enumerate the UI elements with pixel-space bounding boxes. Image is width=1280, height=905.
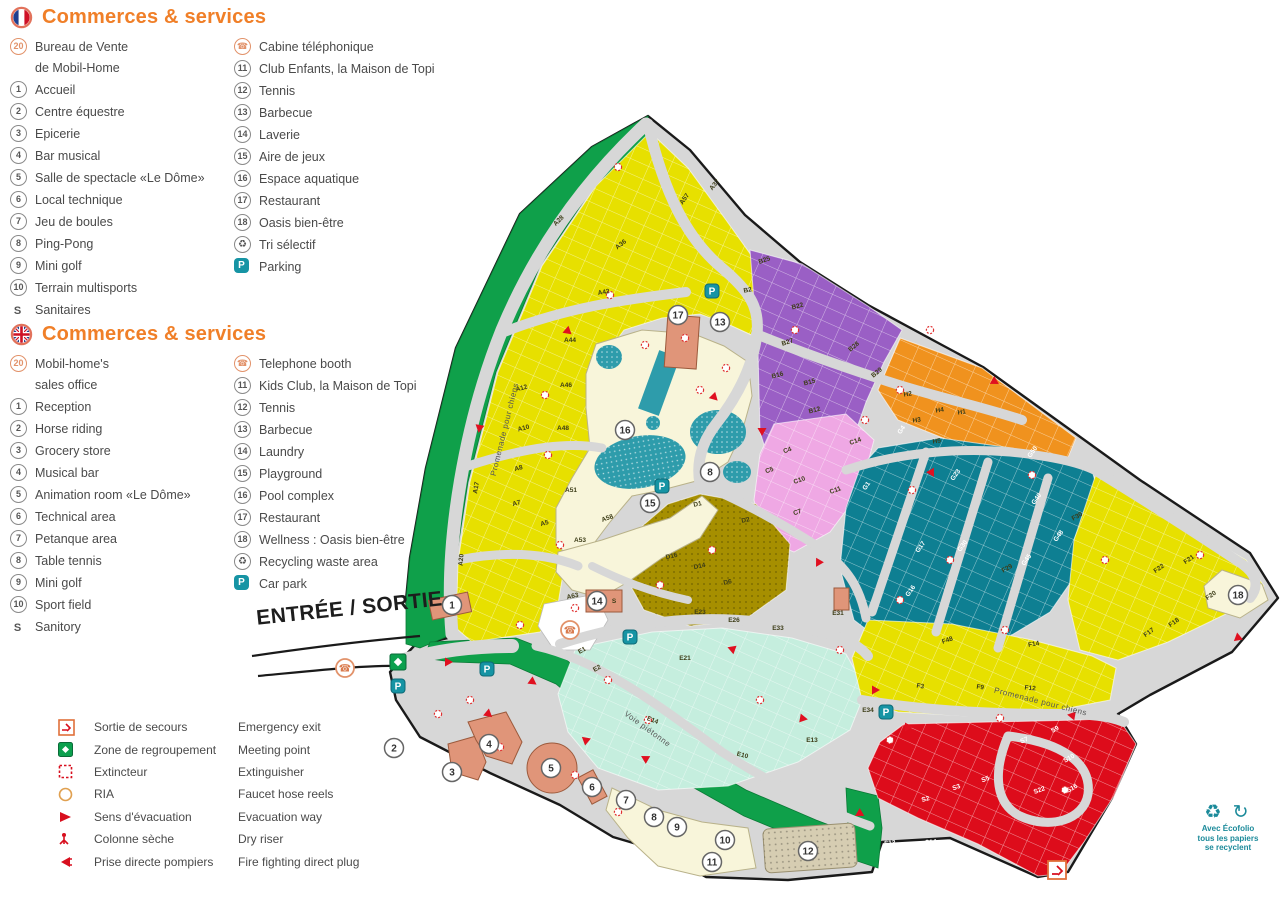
parking-icon: P: [234, 575, 249, 590]
location-marker-8-17: 8: [701, 463, 720, 482]
legend-english-header: Commerces & services: [10, 323, 466, 346]
legend-item-3: 3Grocery store: [10, 440, 234, 462]
legend-item-label: Tri sélectif: [259, 234, 316, 256]
extinguisher-marker-13: [836, 646, 843, 653]
french-flag-icon: [10, 6, 33, 29]
svg-text:P: P: [883, 708, 890, 719]
svg-text:☎: ☎: [339, 664, 351, 675]
number-15-icon: 15: [234, 465, 251, 482]
extinguisher-marker-20: [791, 326, 798, 333]
pitch-label-E13: E13: [806, 737, 818, 744]
ecofolio-label: ♻ ↻ Avec Écofolio tous les papiers se re…: [1182, 802, 1274, 853]
legend-french-col1: 20Bureau de Vente de Mobil-Home1Accueil2…: [10, 36, 234, 322]
telephone-marker-1: ☎: [561, 621, 579, 639]
legend-item-7: 7Jeu de boules: [10, 211, 234, 233]
number-1-icon: 1: [10, 398, 27, 415]
safety-label-fr: Colonne sèche: [94, 832, 238, 846]
legend-item-20: 20Mobil-home's sales office: [10, 353, 234, 396]
safety-label-en: Emergency exit: [238, 720, 359, 734]
number-14-icon: 14: [234, 126, 251, 143]
number-2-icon: 2: [10, 420, 27, 437]
number-11-icon: 11: [234, 377, 251, 394]
number-6-icon: 6: [10, 191, 27, 208]
legend-item-15: 15Aire de jeux: [234, 146, 458, 168]
svg-text:12: 12: [802, 847, 814, 858]
svg-text:2: 2: [391, 744, 397, 755]
number-3-icon: 3: [10, 125, 27, 142]
parking-marker-4: P: [480, 662, 494, 676]
number-4-icon: 4: [10, 147, 27, 164]
legend-item-6: 6Technical area: [10, 506, 234, 528]
extinguisher-marker-6: [516, 621, 523, 628]
legend-item-label: Animation room «Le Dôme»: [35, 484, 191, 506]
number-10-icon: 10: [10, 279, 27, 296]
legend-item-5: 5Animation room «Le Dôme»: [10, 484, 234, 506]
extinguisher-marker-21: [861, 416, 868, 423]
legend-item-4: 4Bar musical: [10, 145, 234, 167]
legend-item: ☎Cabine téléphonique: [234, 36, 458, 58]
legend-item-label: Parking: [259, 256, 301, 278]
building-7: [834, 588, 849, 610]
legend-french-title: Commerces & services: [42, 6, 266, 29]
pitch-label-E33: E33: [772, 625, 784, 632]
legend-item: PParking: [234, 256, 458, 278]
pitch-label-E21: E21: [679, 655, 691, 662]
legend-english-col1: 20Mobil-home's sales office1Reception2Ho…: [10, 353, 234, 639]
legend-french-columns: 20Bureau de Vente de Mobil-Home1Accueil2…: [10, 36, 466, 322]
legend-item-9: 9Mini golf: [10, 255, 234, 277]
number-9-icon: 9: [10, 574, 27, 591]
safety-label-fr: RIA: [94, 787, 238, 801]
parking-icon: P: [234, 258, 249, 273]
legend-item-10: 10Terrain multisports: [10, 277, 234, 299]
legend-item-14: 14Laverie: [234, 124, 458, 146]
emergency-exit-marker-0: [1048, 861, 1066, 879]
svg-text:11: 11: [707, 858, 718, 869]
pitch-label-A51: A51: [565, 487, 577, 494]
telephone-icon: ☎: [234, 38, 251, 55]
legend-item-S: SSanitory: [10, 616, 234, 639]
pool-4-texture: [723, 461, 751, 483]
legend-item-14: 14Laundry: [234, 441, 458, 463]
legend-item-label: Sanitory: [35, 616, 81, 638]
legend-item-5: 5Salle de spectacle «Le Dôme»: [10, 167, 234, 189]
legend-item-label: Terrain multisports: [35, 277, 137, 299]
legend-item-label: Local technique: [35, 189, 123, 211]
number-7-icon: 7: [10, 530, 27, 547]
safety-label-en: Evacuation way: [238, 810, 359, 824]
legend-item-13: 13Barbecue: [234, 419, 458, 441]
pitch-label-B2: B2: [743, 286, 753, 294]
legend-english-title: Commerces & services: [42, 323, 266, 346]
legend-item-label: Recycling waste area: [259, 551, 378, 573]
svg-text:16: 16: [619, 426, 631, 437]
parking-marker-5: P: [879, 705, 893, 719]
pitch-label-E31: E31: [832, 610, 844, 617]
svg-text:P: P: [627, 633, 634, 644]
location-marker-4-3: 4: [480, 735, 499, 754]
parking-marker-3: P: [391, 679, 405, 693]
legend-item-label: Mini golf: [35, 255, 82, 277]
evac-icon: [58, 811, 94, 823]
legend-item-8: 8Table tennis: [10, 550, 234, 572]
legend-item-1: 1Reception: [10, 396, 234, 418]
legend-item-label: Kids Club, la Maison de Topi: [259, 375, 417, 397]
extinguisher-marker-17: [908, 486, 915, 493]
number-7-icon: 7: [10, 213, 27, 230]
location-marker-7-6: 7: [617, 791, 636, 810]
pitch-label-H2: H2: [903, 390, 913, 398]
extinguisher-marker-4: [544, 451, 551, 458]
telephone-marker-0: ☎: [336, 659, 354, 677]
legend-item-label: Accueil: [35, 79, 75, 101]
telephone-icon: ☎: [234, 355, 251, 372]
legend-item-15: 15Playground: [234, 463, 458, 485]
location-marker-17-16: 17: [669, 306, 688, 325]
extinguisher-marker-30: [571, 771, 578, 778]
legend-item-label: Horse riding: [35, 418, 102, 440]
legend-item-label: Reception: [35, 396, 91, 418]
safety-item-evac: Sens d'évacuationEvacuation way: [58, 806, 359, 828]
location-marker-2-1: 2: [385, 739, 404, 758]
legend-item-label: Club Enfants, la Maison de Topi: [259, 58, 435, 80]
location-marker-5-4: 5: [542, 759, 561, 778]
number-5-icon: 5: [10, 486, 27, 503]
legend-item-label: Barbecue: [259, 102, 313, 124]
legend-item-2: 2Centre équestre: [10, 101, 234, 123]
legend-item-11: 11Club Enfants, la Maison de Topi: [234, 58, 458, 80]
legend-item-label: Ping-Pong: [35, 233, 93, 255]
legend-item-18: 18Wellness : Oasis bien-être: [234, 529, 458, 551]
extinguisher-marker-8: [708, 546, 715, 553]
safety-item-extinguisher: ExtincteurExtinguisher: [58, 761, 359, 783]
legend-item-label: Playground: [259, 463, 322, 485]
pool-0-texture: [596, 345, 622, 369]
number-16-icon: 16: [234, 487, 251, 504]
svg-text:P: P: [395, 682, 402, 693]
legend-item-label: Laundry: [259, 441, 304, 463]
safety-label-en: Meeting point: [238, 743, 359, 757]
location-marker-18-18: 18: [1229, 586, 1248, 605]
number-10-icon: 10: [10, 596, 27, 613]
number-8-icon: 8: [10, 235, 27, 252]
legend-item-11: 11Kids Club, la Maison de Topi: [234, 375, 458, 397]
svg-text:9: 9: [674, 823, 680, 834]
pitch-label-A44: A44: [564, 337, 576, 344]
legend-item-17: 17Restaurant: [234, 190, 458, 212]
number-6-icon: 6: [10, 508, 27, 525]
extinguisher-marker-14: [896, 596, 903, 603]
location-marker-15-14: 15: [641, 494, 660, 513]
number-13-icon: 13: [234, 104, 251, 121]
legend-item-label: Wellness : Oasis bien-être: [259, 529, 405, 551]
legend-item-label: Centre équestre: [35, 101, 125, 123]
legend-item-12: 12Tennis: [234, 397, 458, 419]
legend-item-7: 7Petanque area: [10, 528, 234, 550]
pitch-label-A48: A48: [557, 425, 569, 432]
pitch-label-E26: E26: [728, 617, 740, 624]
safety-legend: Sortie de secoursEmergency exitZone de r…: [58, 716, 359, 873]
legend-item-8: 8Ping-Pong: [10, 233, 234, 255]
svg-text:☎: ☎: [564, 626, 576, 637]
number-5-icon: 5: [10, 169, 27, 186]
legend-item-label: Musical bar: [35, 462, 99, 484]
safety-item-exit: Sortie de secoursEmergency exit: [58, 716, 359, 738]
meeting-icon: [58, 742, 94, 757]
legend-item: ♻Recycling waste area: [234, 551, 458, 573]
number-2-icon: 2: [10, 103, 27, 120]
location-marker-13-12: 13: [711, 313, 730, 332]
location-marker-10-9: 10: [716, 831, 735, 850]
svg-text:15: 15: [644, 499, 656, 510]
extinguisher-marker-25: [886, 736, 893, 743]
extinguisher-marker-23: [1101, 556, 1108, 563]
number-4-icon: 4: [10, 464, 27, 481]
legend-item-label: Barbecue: [259, 419, 313, 441]
extinguisher-marker-10: [604, 676, 611, 683]
extinguisher-marker-22: [926, 326, 933, 333]
legend-item-label: Tennis: [259, 80, 295, 102]
legend-item-label: Laverie: [259, 124, 300, 146]
extinguisher-marker-0: [614, 163, 621, 170]
safety-label-fr: Extincteur: [94, 765, 238, 779]
legend-item-1: 1Accueil: [10, 79, 234, 101]
svg-text:8: 8: [707, 468, 713, 479]
svg-text:18: 18: [1232, 591, 1244, 602]
number-17-icon: 17: [234, 509, 251, 526]
safety-item-meeting: Zone de regroupementMeeting point: [58, 738, 359, 760]
legend-item-label: Espace aquatique: [259, 168, 359, 190]
svg-text:7: 7: [623, 796, 629, 807]
number-18-icon: 18: [234, 531, 251, 548]
entrance-road-edge-1: [258, 666, 398, 676]
legend-item-label: Mobil-home's sales office: [35, 353, 109, 396]
extinguisher-marker-34: [722, 364, 729, 371]
svg-text:14: 14: [591, 597, 603, 608]
number-8-icon: 8: [10, 552, 27, 569]
legend-item-label: Salle de spectacle «Le Dôme»: [35, 167, 205, 189]
safety-label-fr: Prise directe pompiers: [94, 855, 238, 869]
legend-item-3: 3Epicerie: [10, 123, 234, 145]
extinguisher-marker-32: [681, 334, 688, 341]
extinguisher-marker-7: [571, 604, 578, 611]
legend-item-18: 18Oasis bien-être: [234, 212, 458, 234]
legend-item-label: Bar musical: [35, 145, 100, 167]
recycle-icon: ♻: [234, 236, 251, 253]
fireplug-icon: [58, 856, 94, 868]
legend-item-label: Oasis bien-être: [259, 212, 344, 234]
pitch-label-A53: A53: [574, 537, 586, 544]
extinguisher-marker-1: [641, 341, 648, 348]
extinguisher-marker-33: [434, 710, 441, 717]
safety-item-fireplug: Prise directe pompiersFire fighting dire…: [58, 850, 359, 872]
entrance-road-edge-0: [252, 636, 420, 656]
legend-item-10: 10Sport field: [10, 594, 234, 616]
pitch-label-S: S: [612, 598, 617, 605]
svg-text:6: 6: [589, 783, 595, 794]
number-17-icon: 17: [234, 192, 251, 209]
parking-marker-0: P: [705, 284, 719, 298]
number-3-icon: 3: [10, 442, 27, 459]
extinguisher-marker-2: [696, 386, 703, 393]
location-marker-9-8: 9: [668, 818, 687, 837]
pitch-label-H5: H5: [932, 437, 942, 445]
sales-office-icon: 20: [10, 38, 27, 55]
legend-item-label: Epicerie: [35, 123, 80, 145]
legend-item-label: Bureau de Vente de Mobil-Home: [35, 36, 128, 79]
pitch-label-H3: H3: [912, 416, 922, 424]
extinguisher-marker-26: [996, 714, 1003, 721]
legend-item-20: 20Bureau de Vente de Mobil-Home: [10, 36, 234, 79]
ria-icon: [58, 787, 94, 802]
legend-item-label: Restaurant: [259, 190, 320, 212]
legend-item-label: Sanitaires: [35, 299, 91, 321]
parking-marker-1: P: [655, 479, 669, 493]
svg-text:P: P: [709, 287, 716, 298]
legend-item-6: 6Local technique: [10, 189, 234, 211]
legend-item: ☎Telephone booth: [234, 353, 458, 375]
exit-icon: [58, 719, 94, 736]
safety-label-en: Extinguisher: [238, 765, 359, 779]
svg-text:P: P: [484, 665, 491, 676]
legend-french-col2: ☎Cabine téléphonique11Club Enfants, la M…: [234, 36, 458, 322]
uk-flag-icon: [10, 323, 33, 346]
svg-text:13: 13: [714, 318, 726, 329]
legend-item-12: 12Tennis: [234, 80, 458, 102]
pitch-label-H4: H4: [935, 406, 945, 414]
eco-line2: tous les papiers: [1182, 834, 1274, 844]
location-marker-12-11: 12: [799, 842, 818, 861]
safety-legend-list: Sortie de secoursEmergency exitZone de r…: [58, 716, 359, 873]
pool-5-texture: [646, 416, 660, 430]
safety-label-fr: Sens d'évacuation: [94, 810, 238, 824]
legend-item-2: 2Horse riding: [10, 418, 234, 440]
extinguisher-marker-12: [756, 696, 763, 703]
legend-item-label: Technical area: [35, 506, 116, 528]
legend-item-label: Petanque area: [35, 528, 117, 550]
svg-text:5: 5: [548, 764, 554, 775]
meeting-point-marker-0: [390, 654, 406, 670]
location-marker-14-13: 14: [588, 592, 607, 611]
legend-item-label: Sport field: [35, 594, 91, 616]
pitch-label-A46: A46: [560, 382, 572, 389]
legend-item-16: 16Espace aquatique: [234, 168, 458, 190]
extinguisher-icon: [58, 764, 94, 779]
number-12-icon: 12: [234, 82, 251, 99]
svg-text:17: 17: [672, 311, 684, 322]
number-12-icon: 12: [234, 399, 251, 416]
recycle-logo-icon: ♻ ↻: [1182, 802, 1274, 824]
legend-french: Commerces & services 20Bureau de Vente d…: [10, 6, 466, 322]
number-18-icon: 18: [234, 214, 251, 231]
safety-item-dryriser: Colonne sècheDry riser: [58, 828, 359, 850]
extinguisher-marker-5: [556, 541, 563, 548]
safety-item-ria: RIAFaucet hose reels: [58, 783, 359, 805]
svg-text:4: 4: [486, 740, 492, 751]
pitch-label-F12: F12: [1024, 685, 1036, 693]
pitch-label-E34: E34: [862, 707, 874, 714]
number-16-icon: 16: [234, 170, 251, 187]
legend-item-label: Aire de jeux: [259, 146, 325, 168]
sanitary-letter-icon: S: [10, 301, 25, 322]
dryriser-icon: [58, 832, 94, 846]
legend-item-label: Car park: [259, 573, 307, 595]
legend-item: ♻Tri sélectif: [234, 234, 458, 256]
recycle-icon: ♻: [234, 553, 251, 570]
legend-item-S: SSanitaires: [10, 299, 234, 322]
pitch-label-E23: E23: [694, 609, 706, 616]
safety-label-fr: Zone de regroupement: [94, 743, 238, 757]
legend-item-label: Table tennis: [35, 550, 102, 572]
location-marker-8-7: 8: [645, 808, 664, 827]
sales-office-icon: 20: [10, 355, 27, 372]
location-marker-16-15: 16: [616, 421, 635, 440]
legend-item-16: 16Pool complex: [234, 485, 458, 507]
svg-text:3: 3: [449, 768, 455, 779]
extinguisher-marker-31: [614, 808, 621, 815]
safety-label-en: Faucet hose reels: [238, 787, 359, 801]
pitch-label-S13: S13: [884, 839, 897, 847]
legend-item-label: Jeu de boules: [35, 211, 113, 233]
extinguisher-marker-3: [541, 391, 548, 398]
svg-text:P: P: [659, 482, 666, 493]
pitch-label-S14: S14: [925, 838, 938, 846]
number-15-icon: 15: [234, 148, 251, 165]
legend-item-label: Cabine téléphonique: [259, 36, 374, 58]
extinguisher-marker-18: [1028, 471, 1035, 478]
pitch-label-H1: H1: [957, 408, 967, 416]
number-9-icon: 9: [10, 257, 27, 274]
legend-item-17: 17Restaurant: [234, 507, 458, 529]
svg-text:10: 10: [719, 836, 731, 847]
sanitary-letter-icon: S: [10, 618, 25, 639]
legend-item-9: 9Mini golf: [10, 572, 234, 594]
extinguisher-marker-15: [946, 556, 953, 563]
safety-label-fr: Sortie de secours: [94, 720, 238, 734]
eco-line3: se recyclent: [1182, 843, 1274, 853]
legend-item-label: Mini golf: [35, 572, 82, 594]
legend-item-13: 13Barbecue: [234, 102, 458, 124]
safety-label-en: Fire fighting direct plug: [238, 855, 359, 869]
legend-french-header: Commerces & services: [10, 6, 466, 29]
location-marker-6-5: 6: [583, 778, 602, 797]
extinguisher-marker-16: [1001, 626, 1008, 633]
svg-text:8: 8: [651, 813, 657, 824]
legend-item-label: Telephone booth: [259, 353, 351, 375]
extinguisher-marker-24: [1196, 551, 1203, 558]
number-1-icon: 1: [10, 81, 27, 98]
legend-item-label: Restaurant: [259, 507, 320, 529]
number-13-icon: 13: [234, 421, 251, 438]
safety-label-en: Dry riser: [238, 832, 359, 846]
extinguisher-marker-28: [466, 696, 473, 703]
location-marker-3-2: 3: [443, 763, 462, 782]
extinguisher-marker-9: [656, 581, 663, 588]
pitch-label-F9: F9: [976, 684, 985, 692]
number-14-icon: 14: [234, 443, 251, 460]
number-11-icon: 11: [234, 60, 251, 77]
campsite-map-page: PPPPPP☎☎A12A10A8A7A5A44A46A48A51A53A36A3…: [0, 0, 1280, 905]
legend-item-label: Tennis: [259, 397, 295, 419]
legend-item-4: 4Musical bar: [10, 462, 234, 484]
eco-line1: Avec Écofolio: [1182, 824, 1274, 834]
location-marker-11-10: 11: [703, 853, 722, 872]
legend-item-label: Pool complex: [259, 485, 334, 507]
legend-item-label: Grocery store: [35, 440, 111, 462]
parking-marker-2: P: [623, 630, 637, 644]
